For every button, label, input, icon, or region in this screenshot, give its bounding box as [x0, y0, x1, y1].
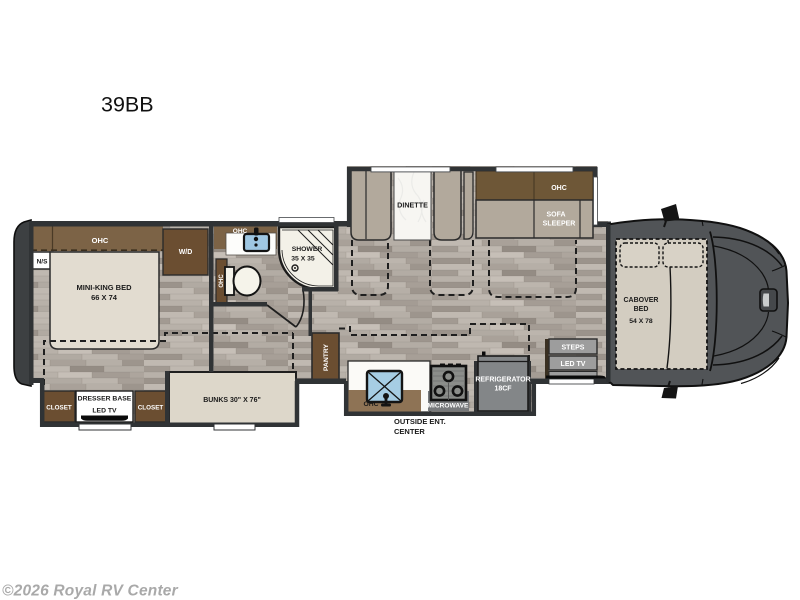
svg-text:35 X 35: 35 X 35 [291, 256, 315, 263]
svg-text:CLOSET: CLOSET [138, 405, 164, 412]
svg-text:N/S: N/S [37, 259, 49, 266]
svg-text:STEPS: STEPS [562, 345, 585, 352]
svg-text:MICROWAVE: MICROWAVE [428, 403, 470, 410]
svg-text:CABOVER: CABOVER [623, 297, 658, 304]
svg-text:CLOSET: CLOSET [46, 405, 72, 412]
svg-text:39BB: 39BB [101, 93, 154, 117]
svg-text:OHC: OHC [551, 185, 567, 192]
svg-text:SOFA: SOFA [546, 212, 565, 219]
svg-text:W/D: W/D [179, 249, 193, 256]
svg-text:18CF: 18CF [494, 386, 512, 393]
svg-text:BUNKS 30" X 76": BUNKS 30" X 76" [203, 397, 261, 404]
svg-text:54 X 78: 54 X 78 [629, 318, 653, 325]
svg-text:PANTRY: PANTRY [323, 343, 330, 371]
svg-text:©2026 Royal RV Center: ©2026 Royal RV Center [2, 583, 179, 600]
svg-text:LED TV: LED TV [92, 408, 117, 415]
svg-text:OUTSIDE ENT.: OUTSIDE ENT. [394, 417, 446, 426]
svg-text:SHOWER: SHOWER [292, 246, 323, 253]
svg-text:DINETTE: DINETTE [397, 201, 428, 210]
svg-text:BED: BED [634, 306, 649, 313]
svg-text:REFRIGERATOR: REFRIGERATOR [475, 377, 530, 384]
svg-text:LED TV: LED TV [561, 361, 586, 368]
svg-text:SLEEPER: SLEEPER [543, 221, 576, 228]
svg-text:CENTER: CENTER [394, 427, 425, 436]
svg-text:MINI-KING BED: MINI-KING BED [77, 283, 133, 292]
svg-text:66 X 74: 66 X 74 [91, 293, 118, 302]
svg-text:OHC: OHC [92, 236, 109, 245]
svg-text:DRESSER BASE: DRESSER BASE [78, 396, 132, 403]
